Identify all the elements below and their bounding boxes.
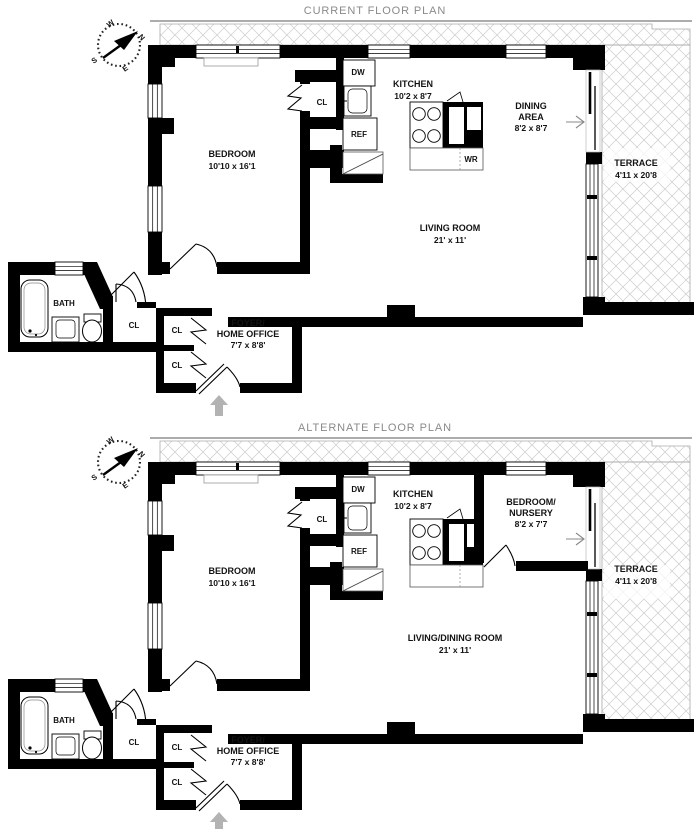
bedroom-label: BEDROOM: [209, 566, 256, 576]
terrace-dims: 4'11 x 20'8: [615, 576, 657, 586]
foyer-closet-label-2: CL: [172, 361, 183, 370]
terrace-dims: 4'11 x 20'8: [615, 170, 657, 180]
washer-label: WR: [464, 155, 478, 164]
kitchen-dims: 10'2 x 8'7: [394, 501, 432, 511]
bedroom-label: BEDROOM: [209, 149, 256, 159]
foyer-label-line1: FOYER/: [231, 318, 265, 328]
current-plan-title: CURRENT FLOOR PLAN: [304, 5, 447, 17]
foyer-label-line2: HOME OFFICE: [217, 329, 280, 339]
terrace-label: TERRACE: [614, 158, 658, 168]
refrigerator-label: REF: [351, 130, 367, 139]
floorplan-page: W N E S: [0, 0, 694, 829]
nursery-label-line2: NURSERY: [509, 508, 553, 518]
refrigerator-label: REF: [351, 547, 367, 556]
bedroom-closet-label: CL: [317, 98, 328, 107]
kitchen-dims: 10'2 x 8'7: [394, 91, 432, 101]
kitchen-label: KITCHEN: [393, 489, 433, 499]
living-dining-label: LIVING/DINING ROOM: [408, 633, 503, 643]
hall-closet-label: CL: [129, 738, 140, 747]
hall-closet-label: CL: [129, 321, 140, 330]
nursery-door: [484, 545, 515, 567]
nursery-label-line1: BEDROOM/: [506, 497, 556, 507]
bedroom-dims: 10'10 x 16'1: [208, 578, 255, 588]
living-room-label: LIVING ROOM: [420, 223, 481, 233]
dishwasher-label: DW: [351, 485, 365, 494]
dining-label-line1: DINING: [515, 101, 547, 111]
kitchen-label: KITCHEN: [393, 79, 433, 89]
foyer-label-line1: FOYER/: [231, 735, 265, 745]
living-room-dims: 21' x 11': [434, 235, 466, 245]
alternate-floor-plan: ALTERNATE FLOOR PLAN BEDROOM 10'10 x 16'…: [0, 417, 694, 829]
dining-dims: 8'2 x 8'7: [515, 123, 548, 133]
bedroom-closet-label: CL: [317, 515, 328, 524]
nursery-dims: 8'2 x 7'7: [515, 519, 548, 529]
foyer-label-line2: HOME OFFICE: [217, 746, 280, 756]
living-dining-dims: 21' x 11': [439, 645, 471, 655]
foyer-dims: 7'7 x 8'8': [231, 340, 266, 350]
foyer-closet-label-1: CL: [172, 743, 183, 752]
bath-label: BATH: [53, 716, 75, 725]
alternate-plan-title: ALTERNATE FLOOR PLAN: [298, 422, 452, 434]
terrace-label: TERRACE: [614, 564, 658, 574]
current-floor-plan: CURRENT FLOOR PLAN BEDROOM 10'10 x 16'1 …: [0, 0, 694, 417]
dishwasher-label: DW: [351, 68, 365, 77]
foyer-closet-label-1: CL: [172, 326, 183, 335]
bedroom-dims: 10'10 x 16'1: [208, 161, 255, 171]
foyer-closet-label-2: CL: [172, 778, 183, 787]
bath-label: BATH: [53, 299, 75, 308]
foyer-dims: 7'7 x 8'8': [231, 757, 266, 767]
dining-label-line2: AREA: [518, 112, 544, 122]
